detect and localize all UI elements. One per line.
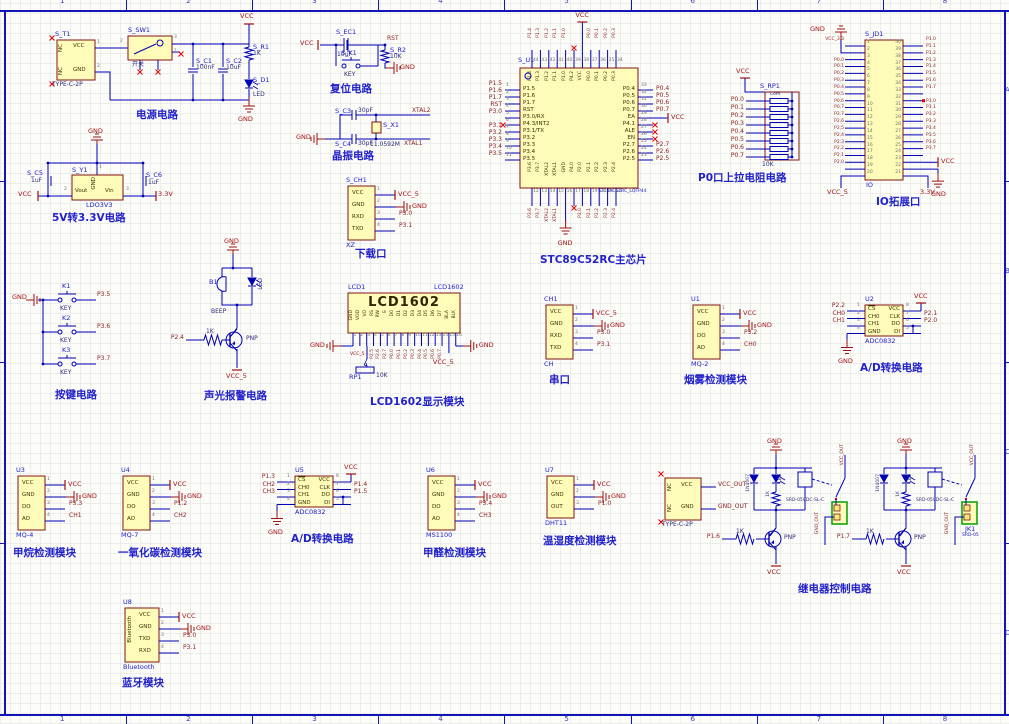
lcd-data-net: P0.0 <box>391 349 396 359</box>
co-caption: 一氧化碳检测模块 <box>118 548 202 559</box>
formaldehyde-vcc-net: VCC <box>478 481 492 488</box>
mcu-tpin-num: 36 <box>600 59 606 64</box>
lcd-pin-name: D0 <box>391 310 396 316</box>
adc1-rname: VCC <box>880 307 900 313</box>
co-pin-name: GND <box>127 493 140 499</box>
adc1-lnet: P2.2 <box>821 303 845 309</box>
io-lnet: P0.2 <box>819 72 844 77</box>
wire-segment <box>812 479 832 485</box>
adc2-lnum: 2 <box>287 483 290 488</box>
wire-segment <box>58 323 76 334</box>
dht-part: DHT11 <box>545 520 567 527</box>
lcd-pin-name: D4 <box>419 310 424 316</box>
buzzer-label: BEEP <box>211 309 226 315</box>
adc2-lnum: 4 <box>287 498 290 503</box>
wire-segment <box>58 355 76 366</box>
gnd-symbol-icon <box>841 340 853 354</box>
adc2-lnet: P1.3 <box>251 474 275 480</box>
reset-rst-net: RST <box>387 36 399 42</box>
column-label: 6 <box>691 715 695 723</box>
relay-diode-label: 1N4007 <box>747 474 752 492</box>
mcu-rpin-num: 30 <box>641 105 647 110</box>
io-rnum: 34 <box>889 82 901 87</box>
wire-segment <box>964 514 970 520</box>
co-pin-name: AO <box>127 517 135 523</box>
relay-part-label: SRD-05VDC-SL-C <box>916 499 954 504</box>
adc2-lname: CH1 <box>298 493 309 499</box>
lcd-pin-name: D7 <box>439 310 444 316</box>
wire-segment <box>42 299 45 302</box>
download-pin-name: TXD <box>352 227 363 233</box>
frame-line <box>631 0 632 10</box>
rp-designator: S_RP1 <box>760 83 780 90</box>
io-rnet: P3.3 <box>926 120 936 125</box>
io-designator: S_JD1 <box>865 31 883 38</box>
column-label-top: 5 <box>564 0 568 5</box>
mcu-bpin-net: XTAL1 <box>554 208 559 222</box>
gnd-symbol-icon <box>26 294 40 306</box>
io-lnet: P2.5 <box>819 127 844 132</box>
adc1-lnum: 3 <box>857 319 860 324</box>
mcu-tpin-name: P1.3 <box>537 71 542 81</box>
mcu-bpin-name: P2.0 <box>579 162 584 172</box>
mcu-lpin-name: P3.0/RX <box>523 115 545 121</box>
lcd-data-net: P0.4 <box>419 349 424 359</box>
wire-segment <box>966 478 975 497</box>
mcu-bpin-net: P2.1 <box>588 208 593 218</box>
dht-caption: 温湿度检测模块 <box>543 536 617 547</box>
io-vcc-port: VCC <box>941 158 955 165</box>
gnd-symbol-icon <box>271 511 283 525</box>
adc2-lname: GND <box>298 501 311 507</box>
adc1-lnum: 4 <box>857 327 860 332</box>
relay-typec-gnd: GND <box>681 505 694 511</box>
mcu-bpin-name: XTAL1 <box>554 162 559 176</box>
relay-terminal-designator: JK1 <box>965 526 975 533</box>
c1-value: 100nF <box>196 65 215 71</box>
wire-segment <box>834 514 840 520</box>
mcu-tpin-net: P0.0 <box>588 28 593 38</box>
formaldehyde-caption: 甲醛检测模块 <box>423 548 486 559</box>
smoke-pin-name: GND <box>697 322 710 328</box>
io-lnum: 3 <box>867 55 870 60</box>
k1-designator: S_K1 <box>341 50 357 57</box>
relay-coil-body[interactable] <box>798 472 812 487</box>
formaldehyde-pin-name: DO <box>432 505 441 511</box>
co-pin-num: 4 <box>152 514 155 519</box>
ldo-pin-gnd: GND <box>92 177 98 190</box>
c2-value: 10uF <box>226 65 241 71</box>
adc2-rnum: 7 <box>336 483 339 488</box>
frame-line <box>126 715 127 724</box>
mcu-tpin-name: VCC <box>579 71 584 80</box>
io-33-port: 3.3V <box>920 189 935 196</box>
io-lnet: P0.7 <box>819 106 844 111</box>
mcu-bpin-num: 16 <box>567 190 573 195</box>
smoke-pin-name: AO <box>697 346 705 352</box>
download-part: XZ <box>346 242 355 249</box>
smoke-pin-name: VCC <box>697 310 708 316</box>
c5-designator: S_C5 <box>27 170 43 177</box>
lcd-pin-name: D3 <box>412 310 417 316</box>
wire-segment <box>381 50 389 63</box>
t1-pin2-num: 2 <box>97 65 100 70</box>
no-erc-marker-icon <box>179 52 184 57</box>
mcu-tpin-net: P1.1 <box>554 28 559 38</box>
relay-part-label: SRD-05VDC-SL-C <box>786 499 824 504</box>
reset-gnd: GND <box>400 64 415 71</box>
relay-coil-body[interactable] <box>928 472 942 487</box>
smoke-sig-net: P3.2 <box>744 330 757 336</box>
keys-gnd: GND <box>12 294 27 301</box>
serial-pin-num: 1 <box>575 307 578 312</box>
io-lnum: 18 <box>867 157 873 162</box>
io-rnum: 40 <box>889 41 901 46</box>
relay-baseres-label: 1K <box>736 529 744 535</box>
gnd-symbol-icon <box>311 133 325 145</box>
dht-pin-num: 1 <box>576 478 579 483</box>
formaldehyde-pin-name: AO <box>432 517 440 523</box>
mcu-tpin-num: 43 <box>541 59 547 64</box>
mcu-tpin-num: 42 <box>550 59 556 64</box>
mcu-lpin-net: P3.5 <box>478 151 502 157</box>
mcu-tpin-name: P0.1 <box>596 71 601 81</box>
lcd-pin-num: 15 <box>449 334 455 339</box>
dht-pin-name: GND <box>551 493 564 499</box>
co-designator: U4 <box>121 467 130 474</box>
bluetooth-part: Bluetooth <box>123 664 155 671</box>
io-rnum: 25 <box>889 144 901 149</box>
frame-line <box>0 543 4 544</box>
adc1-designator: U2 <box>865 296 874 303</box>
alarm-led-label: LED <box>258 278 264 290</box>
serial-vcc-net: VCC_5 <box>596 310 617 317</box>
mcu-rpin-name: P0.6 <box>585 101 635 107</box>
wire-segment <box>245 80 253 87</box>
lcd-pin-num: 16 <box>456 334 462 339</box>
mcu-bpin-name: P2.1 <box>588 162 593 172</box>
formaldehyde-pin-num: 4 <box>457 514 460 519</box>
methane-pin-num: 1 <box>47 478 50 483</box>
serial-gnd-net: GND <box>610 322 625 329</box>
reset-caption: 复位电路 <box>330 84 372 95</box>
mcu-rpin-num: 25 <box>641 140 647 145</box>
mcu-lpin-num: 3 <box>506 98 509 103</box>
adc1-lname: CS <box>868 307 875 313</box>
rp-net: P0.5 <box>722 137 744 143</box>
download-pin-num: 1 <box>377 188 380 193</box>
rp-net: P0.4 <box>722 129 744 135</box>
serial-sig-net: P3.1 <box>597 342 610 348</box>
column-label-top: 1 <box>60 0 64 5</box>
lcd-pin-num: 7 <box>395 334 398 339</box>
frame-line <box>252 715 253 724</box>
power-switch-body[interactable] <box>128 36 172 60</box>
key-net: P3.7 <box>97 356 110 362</box>
ldo-pin2-num: 2 <box>64 188 67 193</box>
mcu-rpin-name: ALE <box>585 129 635 135</box>
relay-baseres-label: 1K <box>866 529 874 535</box>
io-lnet: P2.0 <box>819 161 844 166</box>
co-pin-name: VCC <box>127 481 138 487</box>
lcd-pin-name: RW <box>377 310 382 317</box>
adc1-vcc: VCC <box>914 293 928 300</box>
d1-designator: S_D1 <box>253 77 270 84</box>
bluetooth-designator: U8 <box>123 599 132 606</box>
wire-segment <box>736 534 754 544</box>
mcu-rpin-net: P0.7 <box>656 107 669 113</box>
io-lnet: P2.6 <box>819 120 844 125</box>
x1-designator: S_X1 <box>383 122 399 129</box>
lcd-data-net: P0.1 <box>398 349 403 359</box>
wire-segment <box>901 540 904 544</box>
sw-label: 开关 <box>132 62 144 68</box>
mcu-tpin-name: P0.2 <box>605 71 610 81</box>
lcd-pin-num: 3 <box>367 334 370 339</box>
mcu-bpin-name: XTAL2 <box>546 162 551 176</box>
relay-pnp-label: PNP <box>784 535 796 541</box>
bluetooth-pin-name: GND <box>139 625 152 631</box>
adc2-lname: CH0 <box>298 486 309 492</box>
r2-value: 10K <box>390 54 402 60</box>
io-rnet: P3.6 <box>926 141 936 146</box>
adc2-rnet: P1.5 <box>354 489 367 495</box>
frame-line <box>504 715 505 724</box>
mcu-rpin-num: 33 <box>641 84 647 89</box>
wire-segment <box>232 267 235 270</box>
methane-designator: U3 <box>16 467 25 474</box>
rp-com-label: Com <box>770 93 780 98</box>
adc1-gnd: GND <box>838 358 853 365</box>
adc2-lnet: CH2 <box>251 482 275 488</box>
formaldehyde-gnd-net: GND <box>492 493 507 500</box>
mcu-rpin-net: P2.5 <box>656 156 669 162</box>
relay-typec-part: TYPE-C-2P <box>662 522 693 528</box>
key-net: P3.6 <box>97 324 110 330</box>
ldo-pin1-num: 1 <box>99 166 102 171</box>
io-lnum: 5 <box>867 68 870 73</box>
wire-segment <box>770 147 788 152</box>
ldo-pin-vin: Vin <box>105 189 114 195</box>
t1-designator: S_T1 <box>55 31 70 38</box>
io-lnet: P2.1 <box>819 154 844 159</box>
bluetooth-gnd-net: GND <box>196 625 211 632</box>
mcu-bpin-name: P3.7 <box>537 162 542 172</box>
bluetooth-sig-net: P3.0 <box>183 633 196 639</box>
dht-sig-net: P1.0 <box>598 501 611 507</box>
io-lnum: 6 <box>867 75 870 80</box>
download-pin-name: RXD <box>352 215 364 221</box>
co-pin-num: 2 <box>152 490 155 495</box>
io-rnum: 37 <box>889 62 901 67</box>
io-rnum: 30 <box>889 109 901 114</box>
mcu-bpin-net: P3.6 <box>529 208 534 218</box>
formaldehyde-pin-name: GND <box>432 493 445 499</box>
rp-net: P0.3 <box>722 121 744 127</box>
frame-line <box>504 0 505 10</box>
dht-vcc-net: VCC <box>597 481 611 488</box>
mcu-rpin-name: P0.7 <box>585 108 635 114</box>
mcu-rpin-num: 29 <box>641 112 647 117</box>
io-rnet: P3.1 <box>926 106 936 111</box>
frame-line <box>1005 362 1009 363</box>
smoke-gnd-net: GND <box>757 322 772 329</box>
download-gnd-net: GND <box>412 203 427 210</box>
mcu-bpin-name: P2.4 <box>613 162 618 172</box>
c3-value: 30pF <box>358 108 373 114</box>
mcu-lpin-num: 11 <box>506 154 512 159</box>
gnd-symbol-icon <box>327 340 341 352</box>
methane-pin-name: GND <box>22 493 35 499</box>
column-label-top: 6 <box>691 0 695 5</box>
wire-segment <box>770 107 788 112</box>
lcd-data-net: P0.2 <box>405 349 410 359</box>
rp-net: P0.2 <box>722 113 744 119</box>
wire-segment <box>352 110 356 120</box>
mcu-bpin-net: P2.0 <box>579 208 584 218</box>
mcu-tpin-net: P1.0 <box>563 28 568 38</box>
ldo-caption: 5V转3.3V电路 <box>52 213 126 224</box>
wire-segment <box>770 99 788 104</box>
formaldehyde-sig-net: CH3 <box>479 513 492 519</box>
lcd-pin-num: 9 <box>408 334 411 339</box>
serial-designator: CH1 <box>544 296 558 303</box>
io-caption: IO拓展口 <box>876 197 920 208</box>
io-rnet: P1.5 <box>926 72 936 77</box>
lcd-designator: LCD1 <box>348 284 365 291</box>
wire-segment <box>245 47 253 60</box>
mcu-tpin-num: 35 <box>609 59 615 64</box>
alarm-vcc: VCC_5 <box>226 373 247 380</box>
no-erc-marker-icon <box>50 36 55 41</box>
crystal-body[interactable] <box>372 122 381 133</box>
mcu-tpin-num: 44 <box>533 59 539 64</box>
io-rnet: P1.0 <box>926 38 936 43</box>
io-part: IO <box>866 182 873 189</box>
column-label: 1 <box>60 715 64 723</box>
mcu-tpin-num: 34 <box>617 59 623 64</box>
adc2-rname: DI <box>310 501 330 507</box>
download-pin-num: 2 <box>377 200 380 205</box>
wire-segment <box>791 108 794 111</box>
t1-nc1: NC <box>59 44 65 52</box>
co-gnd-net: GND <box>187 493 202 500</box>
download-pin-num: 4 <box>377 224 380 229</box>
smoke-caption: 烟雾检测模块 <box>684 375 747 386</box>
lcd-data-net: P2.5 <box>371 349 376 359</box>
wire-segment <box>791 132 794 135</box>
key-designator: K1 <box>62 283 70 290</box>
mcu-lpin-name: P3.2 <box>523 136 535 142</box>
serial-pin-num: 2 <box>575 319 578 324</box>
adc1-lnet: CH0 <box>821 311 845 317</box>
mcu-bpin-net: XTAL2 <box>546 208 551 222</box>
bluetooth-sig-net: P3.1 <box>183 645 196 651</box>
crystal-caption: 晶振电路 <box>332 151 374 162</box>
wire-segment <box>192 99 195 102</box>
frame-line <box>883 715 884 724</box>
io-rnum: 35 <box>889 75 901 80</box>
wire-segment <box>771 540 774 544</box>
mcu-bpin-num: 20 <box>600 190 606 195</box>
lcd-data-net: P2.6 <box>377 349 382 359</box>
mcu-tpin-name: P4.2 <box>571 71 576 81</box>
lcd-pin-num: 4 <box>374 334 377 339</box>
wire-segment <box>385 63 390 68</box>
column-label: 5 <box>564 715 568 723</box>
adc1-lnum: 2 <box>857 312 860 317</box>
mcu-lpin-name: P3.4 <box>523 150 535 156</box>
wire-segment <box>142 162 145 165</box>
mcu-lpin-num: 2 <box>506 91 509 96</box>
io-rnet: P1.3 <box>926 59 936 64</box>
key-net: P3.5 <box>97 292 110 298</box>
wire-segment <box>47 195 50 198</box>
wire-segment <box>791 140 794 143</box>
co-sig-net: P1.2 <box>174 501 187 507</box>
io-rnum: 31 <box>889 103 901 108</box>
smoke-pin-num: 3 <box>722 331 725 336</box>
row-label: D <box>1005 629 1009 637</box>
io-lnum: 2 <box>867 48 870 53</box>
relay-vccout-net: VCC_OUT <box>718 482 746 488</box>
adc1-rnet: P2.0 <box>924 318 937 324</box>
mcu-lpin-name: P1.6 <box>523 94 535 100</box>
alarm-input-net: P2.4 <box>164 335 184 341</box>
lcd-gnd-right: GND <box>479 342 494 349</box>
io-rnum: 21 <box>889 171 901 176</box>
c5-value: 1uF <box>31 178 42 184</box>
mcu-bpin-num: 17 <box>575 190 581 195</box>
io-rnum: 26 <box>889 137 901 142</box>
serial-part: CH <box>544 361 553 368</box>
io-lnum: 8 <box>867 89 870 94</box>
wire-segment <box>912 325 915 328</box>
wire-segment <box>58 291 76 302</box>
wire-segment <box>360 45 378 66</box>
frame-line <box>0 362 4 363</box>
sw-pin2-num: 2 <box>120 40 123 45</box>
relay-input-net: P1.7 <box>828 534 850 540</box>
row-label: A <box>1005 86 1009 94</box>
io-lnet: P0.3 <box>819 79 844 84</box>
bluetooth-pin-num: 3 <box>161 634 164 639</box>
io-lnet: P0.1 <box>819 65 844 70</box>
wire-segment <box>942 479 962 485</box>
wire-segment <box>142 195 145 198</box>
adc2-rnum: 8 <box>336 475 339 480</box>
bluetooth-pin-num: 1 <box>161 610 164 615</box>
adc2-gnd: GND <box>268 529 283 536</box>
methane-pin-num: 3 <box>47 502 50 507</box>
io-lnum: 11 <box>867 109 873 114</box>
co-part: MQ-7 <box>121 532 138 539</box>
adc2-part: ADC0832 <box>295 509 326 516</box>
wire-segment <box>384 44 387 47</box>
wire-segment <box>222 43 225 46</box>
formaldehyde-sig-net: P3.4 <box>479 501 492 507</box>
adc2-rnum: 5 <box>336 498 339 503</box>
lcd-data-net: P0.5 <box>425 349 430 359</box>
io-rnum: 32 <box>889 96 901 101</box>
adc2-lnum: 1 <box>287 475 290 480</box>
no-erc-marker-icon <box>653 130 658 135</box>
lcd-pin-num: 11 <box>422 334 428 339</box>
wire-segment <box>192 43 195 46</box>
smoke-pin-num: 4 <box>722 343 725 348</box>
wire-segment <box>791 156 794 159</box>
wire-segment <box>222 291 252 305</box>
